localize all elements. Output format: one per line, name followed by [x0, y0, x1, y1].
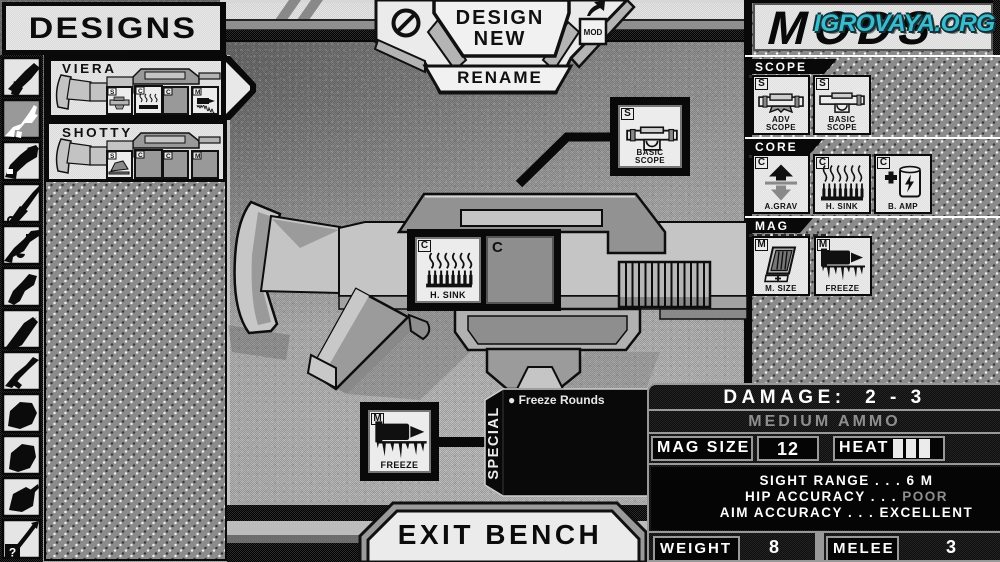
svg-text:SPECIAL: SPECIAL [486, 406, 502, 479]
svg-text:MOD: MOD [584, 28, 603, 37]
svg-text:S: S [110, 89, 115, 96]
svg-text:C: C [166, 89, 171, 96]
svg-text:C: C [166, 153, 171, 160]
svg-text:?: ? [9, 546, 16, 560]
svg-text:S: S [110, 153, 115, 160]
svg-text:C: C [138, 152, 143, 159]
